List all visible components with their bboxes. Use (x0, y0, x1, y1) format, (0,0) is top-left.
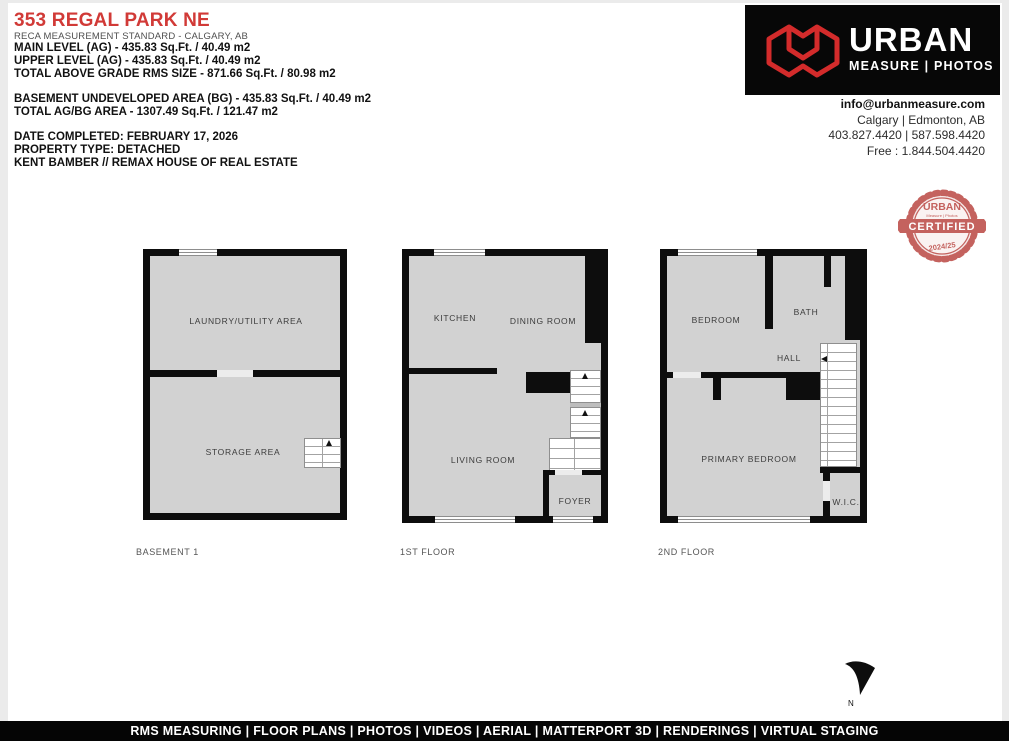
wall (824, 255, 831, 287)
entry-door (553, 516, 593, 523)
stairs-winder (549, 438, 601, 471)
window (179, 249, 217, 256)
spec-line: UPPER LEVEL (AG) - 435.83 Sq.Ft. / 40.49… (14, 55, 336, 68)
room-label-laundry: LAUNDRY/UTILITY AREA (189, 316, 302, 326)
wall (402, 249, 608, 256)
urban-measure-monogram-icon (753, 7, 853, 93)
plan-label-second: 2ND FLOOR (658, 547, 715, 557)
badge-stamp-icon: URBAN Measure | Photos CERTIFIED 2024/25 (898, 193, 986, 259)
plan-label-basement: BASEMENT 1 (136, 547, 199, 557)
stairs-rail (322, 439, 323, 467)
stairs-rail (574, 439, 575, 470)
room-label-storage: STORAGE AREA (206, 447, 281, 457)
room-label-foyer: FOYER (559, 496, 592, 506)
room-label-dining: DINING ROOM (510, 316, 576, 326)
wall (402, 249, 409, 523)
wall (543, 470, 549, 516)
listing-details: DATE COMPLETED: FEBRUARY 17, 2026 PROPER… (14, 131, 298, 171)
contact-phones: 403.827.4420 | 587.598.4420 (828, 128, 985, 144)
contact-locations: Calgary | Edmonton, AB (828, 113, 985, 129)
stairs-rail (827, 344, 828, 466)
north-arrow: N (838, 655, 883, 710)
wall (713, 377, 721, 400)
floorplan-first-floor: KITCHEN DINING ROOM LIVING ROOM FOYER (402, 249, 608, 523)
spec-line: MAIN LEVEL (AG) - 435.83 Sq.Ft. / 40.49 … (14, 42, 336, 55)
wall (585, 249, 608, 343)
room-label-bath: BATH (794, 307, 819, 317)
stairs-down-arrow-icon (821, 356, 827, 362)
window (678, 516, 810, 523)
doorway (673, 372, 701, 378)
stairs-up-arrow-icon (582, 373, 588, 379)
spec-line: BASEMENT UNDEVELOPED AREA (BG) - 435.83 … (14, 93, 371, 106)
page-edge-right (1002, 0, 1009, 741)
urban-measure-logo: URBAN MEASURE | PHOTOS (745, 5, 1000, 95)
brand-name: URBAN (849, 23, 994, 57)
brand-tagline: MEASURE | PHOTOS (849, 59, 994, 73)
wall (765, 255, 773, 329)
room-label-hall: HALL (777, 353, 801, 363)
room-label-living: LIVING ROOM (451, 455, 515, 465)
svg-text:CERTIFIED: CERTIFIED (908, 221, 975, 233)
spec-line: PROPERTY TYPE: DETACHED (14, 144, 298, 157)
north-label: N (848, 699, 854, 708)
wall (143, 513, 347, 520)
certified-badge: URBAN Measure | Photos CERTIFIED 2024/25 (898, 188, 986, 268)
plan-label-first: 1ST FLOOR (400, 547, 455, 557)
room-label-primary: PRIMARY BEDROOM (701, 454, 796, 464)
page-edge-top (0, 0, 1009, 3)
floorplan-second-floor: BEDROOM BATH HALL PRIMARY BEDROOM W.I.C. (660, 249, 867, 523)
spec-line: KENT BAMBER // REMAX HOUSE OF REAL ESTAT… (14, 157, 298, 170)
measurement-standard: RECA MEASUREMENT STANDARD - CALGARY, AB (14, 31, 248, 42)
contact-email: info@urbanmeasure.com (828, 97, 985, 113)
floorplan-basement: LAUNDRY/UTILITY AREA STORAGE AREA (143, 249, 347, 520)
wall (845, 249, 867, 340)
wall (340, 249, 347, 520)
wall (786, 372, 820, 400)
spec-line: TOTAL ABOVE GRADE RMS SIZE - 871.66 Sq.F… (14, 68, 336, 81)
spec-line: DATE COMPLETED: FEBRUARY 17, 2026 (14, 131, 298, 144)
room-label-bedroom: BEDROOM (692, 315, 741, 325)
room-label-wic: W.I.C. (832, 497, 859, 507)
spec-line: TOTAL AG/BG AREA - 1307.49 Sq.Ft. / 121.… (14, 106, 371, 119)
window (434, 249, 485, 256)
wall (660, 249, 667, 523)
doorway (555, 470, 582, 475)
logo-text: URBAN MEASURE | PHOTOS (849, 23, 994, 73)
contact-tollfree: Free : 1.844.504.4420 (828, 144, 985, 160)
wall (143, 249, 347, 256)
doorway (217, 370, 253, 377)
page-title: 353 REGAL PARK NE (14, 10, 210, 32)
stairs-up-arrow-icon (582, 410, 588, 416)
above-grade-measurements: MAIN LEVEL (AG) - 435.83 Sq.Ft. / 40.49 … (14, 42, 336, 82)
room-label-kitchen: KITCHEN (434, 313, 476, 323)
north-arrow-icon (838, 655, 883, 710)
contact-block: info@urbanmeasure.com Calgary | Edmonton… (828, 97, 985, 159)
wall (143, 249, 150, 520)
svg-text:Measure | Photos: Measure | Photos (926, 213, 957, 218)
services-footer-bar: RMS MEASURING | FLOOR PLANS | PHOTOS | V… (0, 721, 1009, 741)
window (435, 516, 515, 523)
wall (402, 368, 497, 374)
stairs-up-arrow-icon (326, 440, 332, 446)
svg-text:URBAN: URBAN (923, 201, 961, 213)
basement-measurements: BASEMENT UNDEVELOPED AREA (BG) - 435.83 … (14, 93, 371, 119)
wall (526, 372, 572, 393)
page-edge-left (0, 0, 8, 741)
window (678, 249, 757, 256)
doorway (823, 481, 830, 501)
services-footer-text: RMS MEASURING | FLOOR PLANS | PHOTOS | V… (130, 724, 878, 738)
